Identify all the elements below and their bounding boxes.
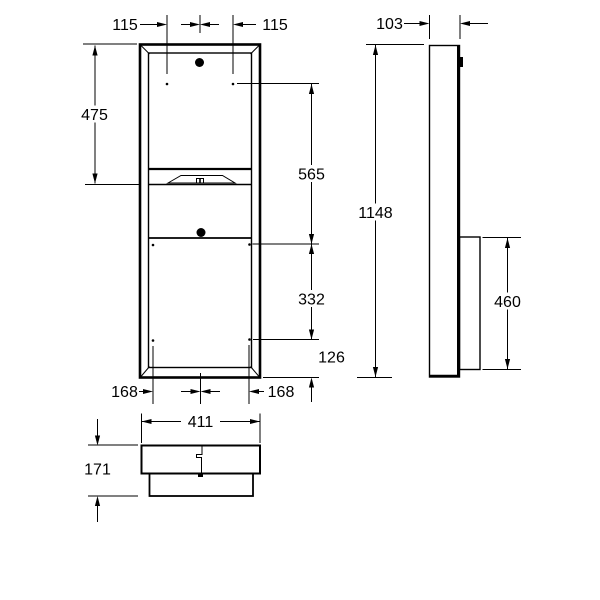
arrowhead xyxy=(92,174,97,184)
arrowhead xyxy=(190,22,200,27)
technical-drawing-page: 115 115 475 565 332 126 xyxy=(0,0,600,600)
dim-recess-height: 460 xyxy=(483,238,524,370)
mounting-tab xyxy=(460,57,464,67)
dim-total-height: 1148 xyxy=(355,45,425,378)
mounting-hole-middle-right xyxy=(248,243,251,246)
dim-label-115-left: 115 xyxy=(112,17,138,34)
arrowhead xyxy=(157,22,167,27)
arrowhead xyxy=(95,436,100,446)
arrowhead xyxy=(191,389,201,394)
arrowhead xyxy=(460,21,470,26)
mounting-hole-top-right xyxy=(232,83,235,86)
arrowhead xyxy=(505,359,510,369)
dim-label-115-right: 115 xyxy=(262,17,288,34)
arrowhead xyxy=(309,330,314,340)
arrowhead xyxy=(309,244,314,254)
arrowhead xyxy=(505,238,510,248)
arrowhead xyxy=(200,22,210,27)
arrowhead xyxy=(309,84,314,94)
front-outer-frame xyxy=(140,45,260,378)
side-front-panel xyxy=(430,46,460,378)
dim-label-1148: 1148 xyxy=(358,205,393,222)
mounting-hole-bottom-left xyxy=(152,339,155,342)
dim-depth: 103 xyxy=(376,15,488,39)
arrowhead xyxy=(95,496,100,506)
dim-total-depth: 171 xyxy=(84,419,138,522)
mounting-hole-middle-left xyxy=(152,244,155,247)
key-cylinder-mark xyxy=(198,474,203,478)
outlet-clip-right xyxy=(200,179,203,184)
dim-label-168-left: 168 xyxy=(111,384,138,401)
bottom-view xyxy=(142,446,261,497)
outlet-clip-left xyxy=(197,179,200,184)
side-recess-box xyxy=(460,237,481,370)
dim-label-171: 171 xyxy=(84,462,111,479)
frame-miter-bottom-left xyxy=(141,367,150,377)
dim-bottom-hole-spacing: 168 168 xyxy=(111,345,294,404)
lower-lock xyxy=(197,228,206,237)
arrowhead xyxy=(249,389,259,394)
arrowhead xyxy=(142,419,152,424)
bottom-front-flange xyxy=(142,446,261,474)
front-inner-frame xyxy=(149,53,252,368)
arrowhead xyxy=(250,419,260,424)
arrowhead xyxy=(233,22,243,27)
mounting-hole-bottom-right xyxy=(248,338,251,341)
frame-miter-bottom-right xyxy=(251,367,260,377)
dispenser-dimension-drawing: 115 115 475 565 332 126 xyxy=(0,0,600,600)
dim-width: 411 xyxy=(142,414,261,444)
cover-split-line xyxy=(197,446,203,473)
dim-label-565: 565 xyxy=(298,167,325,184)
frame-miter-top-left xyxy=(141,46,150,55)
dim-label-475: 475 xyxy=(81,107,108,124)
arrowhead xyxy=(373,367,378,377)
dim-label-168-right: 168 xyxy=(268,384,295,401)
arrowhead xyxy=(309,378,314,388)
dim-top-to-outlet: 475 xyxy=(79,44,140,185)
upper-lock xyxy=(195,58,204,67)
arrowhead xyxy=(309,234,314,244)
dim-label-460: 460 xyxy=(494,294,521,311)
dim-right-stack: 565 332 126 xyxy=(237,84,345,403)
arrowhead xyxy=(420,21,430,26)
dim-label-411: 411 xyxy=(188,414,214,431)
dim-label-332: 332 xyxy=(298,292,325,309)
side-view xyxy=(430,46,481,378)
arrowhead xyxy=(143,389,153,394)
arrowhead xyxy=(373,45,378,55)
dim-label-126: 126 xyxy=(318,350,345,367)
frame-miter-top-right xyxy=(251,46,260,55)
front-view xyxy=(140,45,260,378)
arrowhead xyxy=(201,389,211,394)
dim-label-103: 103 xyxy=(376,16,403,33)
arrowhead xyxy=(92,46,97,56)
towel-outlet-slot xyxy=(168,176,235,184)
mounting-hole-top-left xyxy=(166,83,169,86)
